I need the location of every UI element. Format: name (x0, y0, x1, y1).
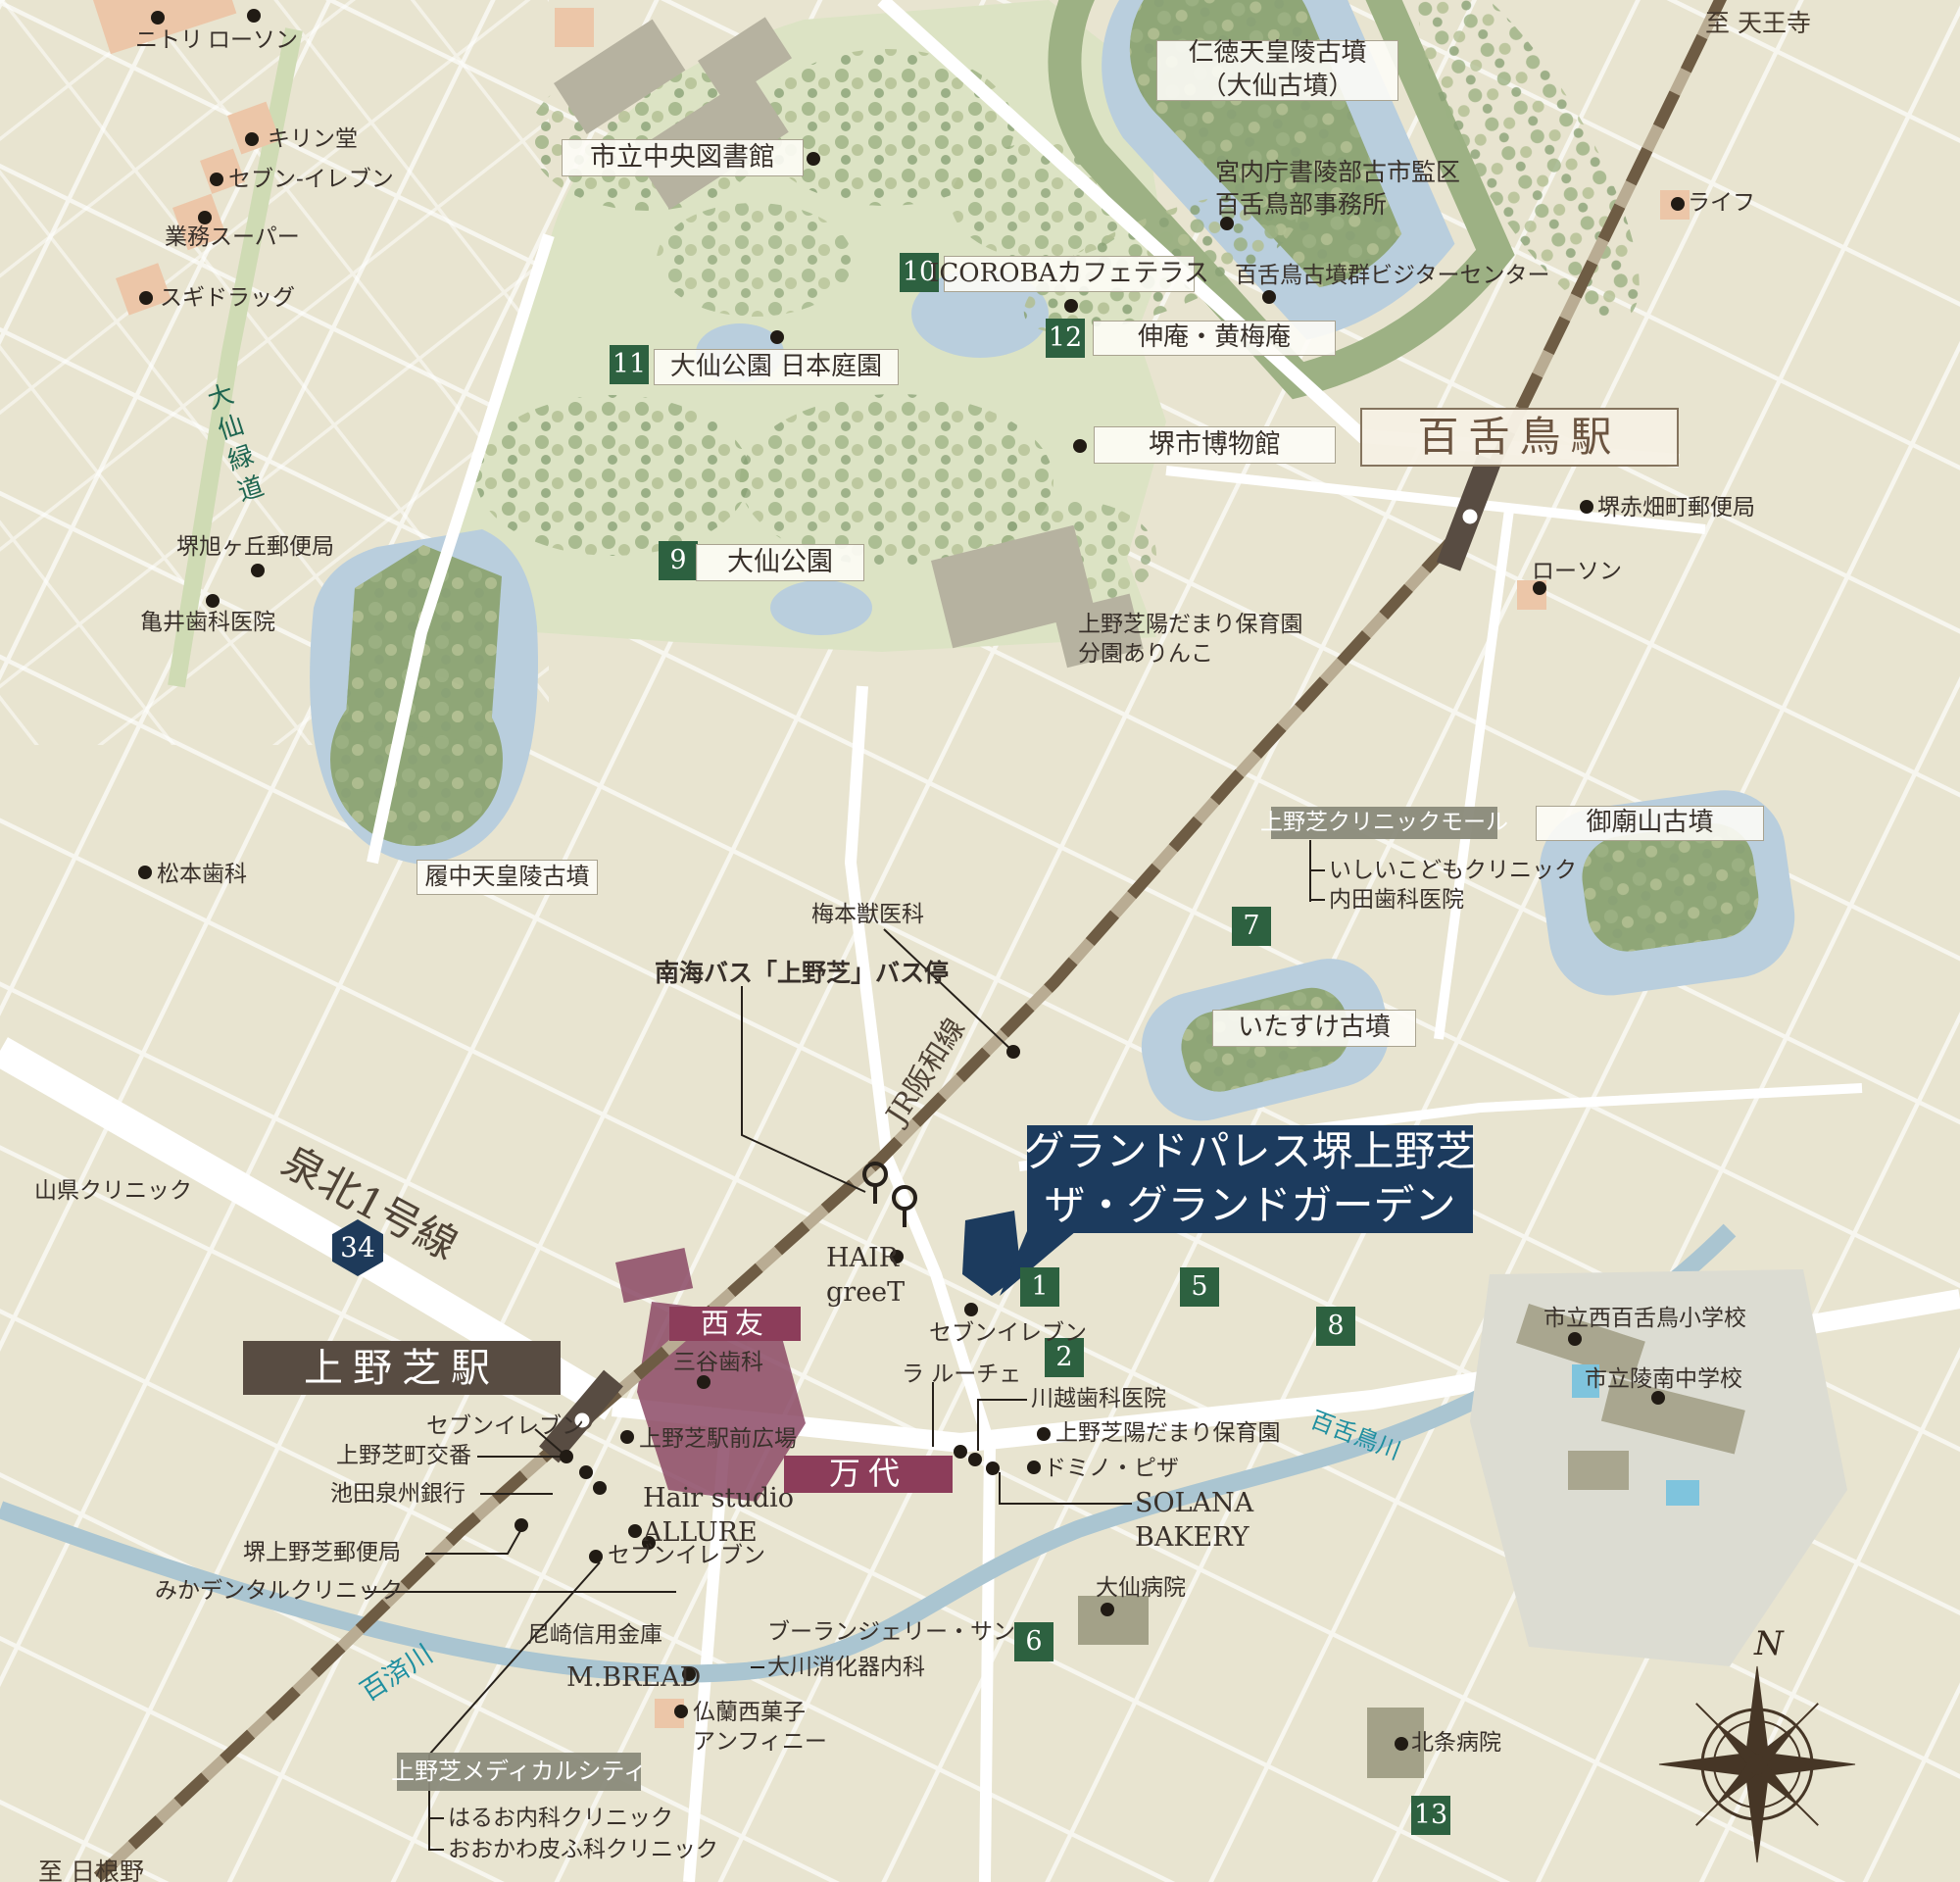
label-hidamari-bunen: 上野芝陽だまり保育園分園ありんこ (1078, 611, 1303, 669)
label-solana-bakery: SOLANABAKERY (1135, 1486, 1253, 1555)
label-gyomu-super: 業務スーパー (165, 223, 300, 253)
num-1: 1 (1020, 1267, 1059, 1307)
label-kawagoe-dental: 川越歯科医院 (1031, 1385, 1166, 1414)
label-uchida-dental: 内田歯科医院 (1329, 886, 1464, 916)
label-mandai: 万代 (784, 1456, 953, 1493)
num-7: 7 (1232, 907, 1271, 946)
label-richu-kofun: 履中天皇陵古墳 (416, 860, 598, 895)
label-medical-city: 上野芝メディカルシティ (397, 1753, 641, 1791)
label-shinan-obaian: 伸庵・黄梅庵 (1093, 321, 1336, 356)
label-daisen-japanese-garden: 大仙公園 日本庭園 (654, 349, 899, 385)
label-city-library: 市立中央図書館 (562, 139, 804, 176)
label-daisen-hospital: 大仙病院 (1096, 1574, 1186, 1604)
label-m-bread: M.BREAD (566, 1660, 701, 1695)
label-hidamari-hoikuen: 上野芝陽だまり保育園 (1055, 1419, 1281, 1449)
label-seven-eleven-1: セブン-イレブン (228, 166, 394, 195)
label-sakai-asahigaoka-post: 堺旭ヶ丘郵便局 (176, 533, 334, 563)
label-boulangerie-sante: ブーランジェリー・サンテ (767, 1618, 1038, 1648)
label-itasuke-kofun: いたすけ古墳 (1212, 1010, 1416, 1047)
label-hair-studio-allure: Hair studioALLURE (643, 1481, 794, 1550)
label-daisen-greenway: 大仙緑道 (198, 379, 269, 513)
label-sakai-akahatacho-post: 堺赤畑町郵便局 (1597, 494, 1755, 523)
label-icoroba-cafe: ICOROBAカフェテラス (944, 256, 1195, 292)
map-labels: N ニトリローソンキリン堂セブン-イレブン業務スーパースギドラッグ市立中央図書館… (0, 0, 1960, 1882)
label-haruo-clinic: はるお内科クリニック (448, 1805, 673, 1834)
label-to-hineno: 至 日根野 (38, 1857, 144, 1882)
label-life: ライフ (1688, 189, 1755, 219)
label-station-square: 上野芝駅前広場 (639, 1425, 797, 1455)
label-okawa-gastro: 大川消化器内科 (767, 1654, 925, 1683)
label-nintoku-kofun: 仁徳天皇陵古墳（大仙古墳） (1156, 40, 1398, 101)
label-nitori: ニトリ (135, 26, 203, 56)
label-gobyoyama-kofun: 御廟山古墳 (1536, 806, 1764, 841)
label-amagasaki-shinkin: 尼崎信用金庫 (527, 1621, 662, 1651)
label-lawson-2: ローソン (1532, 558, 1622, 587)
label-mozu-station: 百舌鳥駅 (1360, 408, 1679, 467)
label-mitani-dental: 三谷歯科 (673, 1349, 763, 1378)
label-jr-hanwa-line: JR阪和線 (878, 1012, 973, 1131)
label-dominos-pizza: ドミノ・ピザ (1044, 1455, 1179, 1484)
label-hair-greet: HAIRgreeT (826, 1241, 905, 1310)
label-mozu-river: 百舌鳥川 (1306, 1405, 1405, 1467)
label-ryonan-junior-high: 市立陵南中学校 (1585, 1365, 1742, 1395)
label-kunaicho-office: 宮内庁書陵部古市監区百舌鳥部事務所 (1215, 157, 1460, 221)
label-daisen-park: 大仙公園 (696, 544, 864, 581)
num-12: 12 (1046, 319, 1085, 358)
label-sakai-uenoshiba-post: 堺上野芝郵便局 (243, 1539, 401, 1568)
label-seven-eleven-3: セブンイレブン (426, 1412, 584, 1442)
label-seiyu: 西友 (669, 1307, 801, 1341)
label-kirindo: キリン堂 (268, 125, 358, 155)
label-nankai-bus-stop: 南海バス「上野芝」バス停 (655, 958, 949, 990)
compass-north-label: N (1754, 1622, 1784, 1665)
area-map: N ニトリローソンキリン堂セブン-イレブン業務スーパースギドラッグ市立中央図書館… (0, 0, 1960, 1882)
label-kamei-dental: 亀井歯科医院 (140, 609, 275, 638)
num-6: 6 (1014, 1622, 1053, 1661)
num-11: 11 (610, 345, 649, 384)
label-uenoshiba-station: 上野芝駅 (243, 1341, 561, 1395)
label-yamagata-clinic: 山県クリニック (34, 1177, 192, 1207)
label-sugi-drug: スギドラッグ (160, 284, 295, 314)
label-seven-eleven-2: セブンイレブン (929, 1319, 1087, 1349)
label-koban: 上野芝町交番 (336, 1442, 471, 1471)
label-matsumoto-dental: 松本歯科 (157, 861, 247, 890)
label-sakai-city-museum: 堺市博物館 (1094, 426, 1336, 464)
label-property: グランドパレス堺上野芝ザ・グランドガーデン (1027, 1125, 1473, 1233)
label-la-luce: ラ ルーチェ (902, 1361, 1021, 1390)
label-ishii-kids-clinic: いしいこどもクリニック (1329, 857, 1577, 886)
num-13: 13 (1411, 1796, 1450, 1835)
label-to-tennoji: 至 天王寺 (1705, 8, 1811, 40)
label-mozu-visitor-center: 百舌鳥古墳群ビジターセンター (1235, 262, 1550, 291)
label-seven-eleven-4: セブンイレブン (608, 1542, 765, 1571)
num-5: 5 (1180, 1267, 1219, 1307)
label-furansu-confectionery: 仏蘭西菓子アンフィニー (693, 1699, 827, 1758)
label-lawson-1: ローソン (208, 26, 298, 56)
label-umemoto-vet: 梅本獣医科 (811, 901, 924, 930)
label-kudara-river: 百済川 (354, 1637, 439, 1709)
label-okawa-derma: おおかわ皮ふ科クリニック (448, 1836, 718, 1865)
label-hojo-hospital: 北条病院 (1411, 1729, 1501, 1758)
label-ikeda-senshu-bank: 池田泉州銀行 (330, 1480, 465, 1510)
num-8: 8 (1316, 1307, 1355, 1346)
label-nishi-mozu-elementary: 市立西百舌鳥小学校 (1543, 1305, 1746, 1334)
label-uenoshiba-clinic-mall: 上野芝クリニックモール (1271, 807, 1497, 839)
num-9: 9 (659, 541, 698, 580)
label-mika-dental: みかデンタルクリニック (155, 1577, 403, 1607)
